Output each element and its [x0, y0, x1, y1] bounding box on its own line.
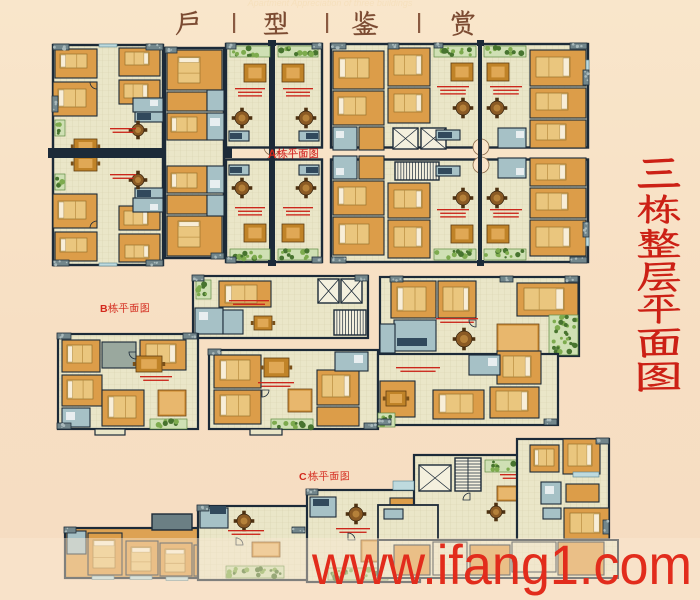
svg-text:B: B — [100, 303, 108, 315]
svg-text:www.ifang1.com: www.ifang1.com — [311, 533, 692, 596]
svg-text:C: C — [299, 471, 307, 483]
svg-text:A: A — [268, 149, 276, 161]
svg-text:Apartment Appreciation of thre: Apartment Appreciation of three building… — [247, 0, 413, 8]
